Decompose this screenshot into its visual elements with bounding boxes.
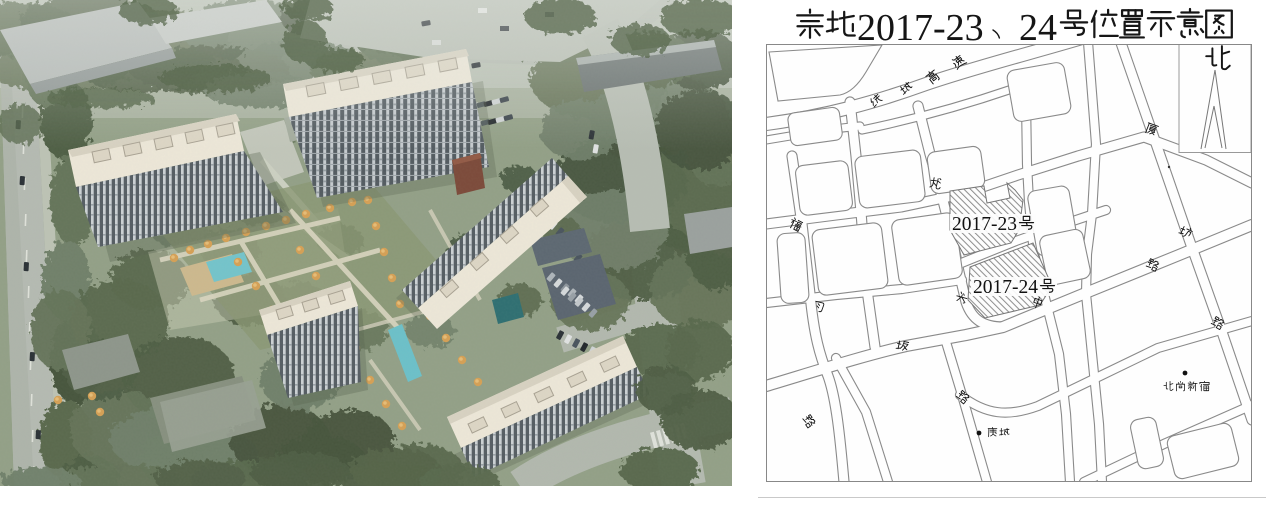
svg-text:2017-23: 2017-23 xyxy=(952,214,1017,235)
svg-text:24: 24 xyxy=(1019,7,1057,44)
svg-text:2017-23: 2017-23 xyxy=(857,7,984,44)
svg-text:2017-24: 2017-24 xyxy=(973,277,1038,298)
